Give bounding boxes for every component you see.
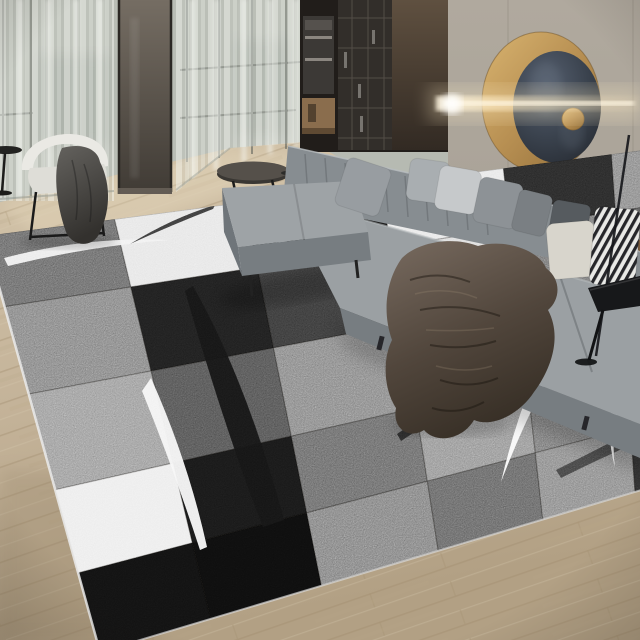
scene-canvas — [0, 0, 640, 640]
living-room-photo — [0, 0, 640, 640]
vignette-overlay — [0, 0, 640, 640]
